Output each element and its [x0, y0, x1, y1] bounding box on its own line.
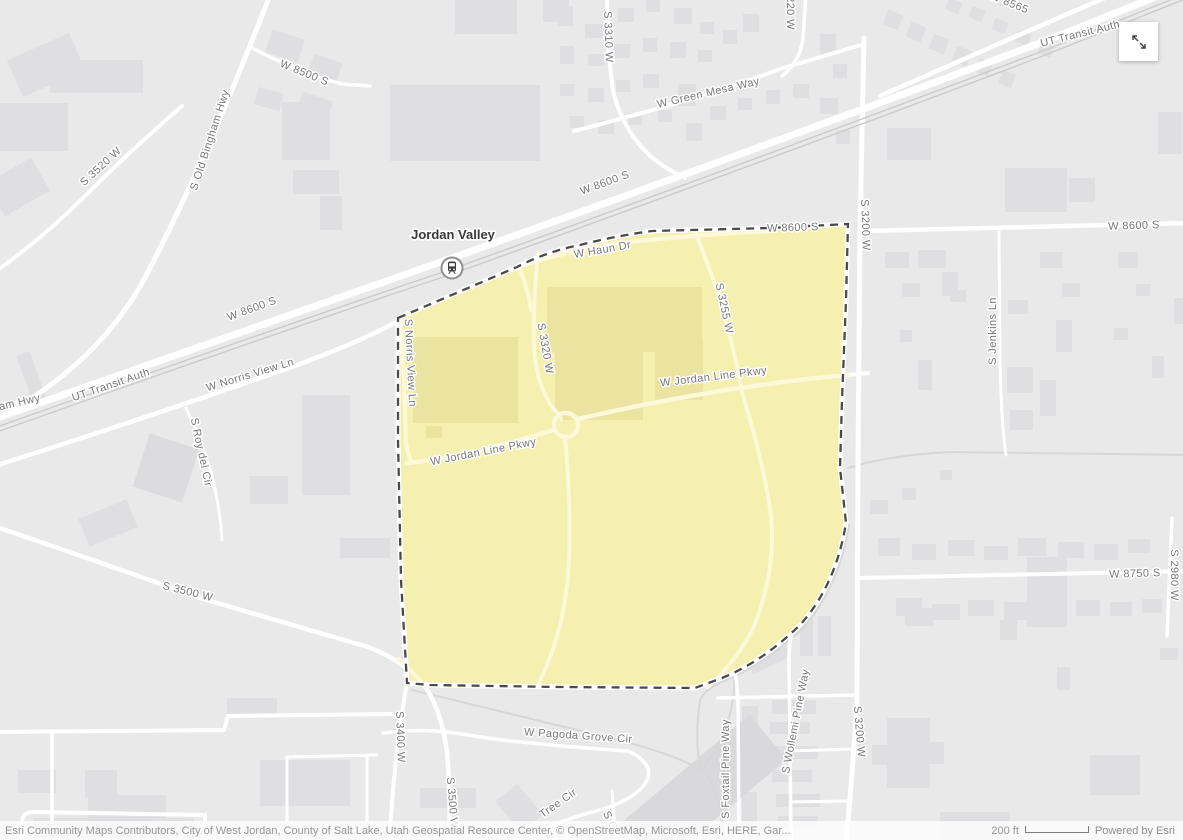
attribution-bar: Esri Community Maps Contributors, City o… — [0, 821, 1183, 840]
road-label: S Foxtail Pine Way — [720, 719, 732, 819]
expand-diagonal-arrows-icon — [1130, 33, 1148, 51]
road-label: W 8600 S — [767, 221, 819, 235]
scale-bar — [1025, 826, 1089, 833]
road-label: 220 W — [784, 0, 796, 30]
road-label: S 3400 W — [393, 711, 407, 763]
road-label: S 3200 W — [858, 199, 872, 251]
road-label: W 8600 S — [1108, 219, 1160, 233]
road-label: S 3310 W — [601, 11, 615, 63]
attribution-text: Esri Community Maps Contributors, City o… — [0, 825, 791, 837]
basemap: W 8500 S S 3520 W S Old Bingham Hwy S 33… — [0, 0, 1183, 840]
station-label: Jordan Valley — [411, 227, 496, 242]
road-label: S 2980 W — [1168, 549, 1180, 601]
train-station-icon[interactable] — [442, 258, 463, 279]
scale-group: 200 ft Powered by Esri — [991, 825, 1183, 837]
road-label: W 8750 S — [1109, 567, 1161, 581]
expand-button[interactable] — [1119, 22, 1158, 61]
map-canvas[interactable]: W 8500 S S 3520 W S Old Bingham Hwy S 33… — [0, 0, 1183, 840]
scale-label: 200 ft — [991, 825, 1019, 837]
road-label: S Jenkins Ln — [987, 297, 999, 365]
powered-by: Powered by Esri — [1095, 825, 1175, 837]
